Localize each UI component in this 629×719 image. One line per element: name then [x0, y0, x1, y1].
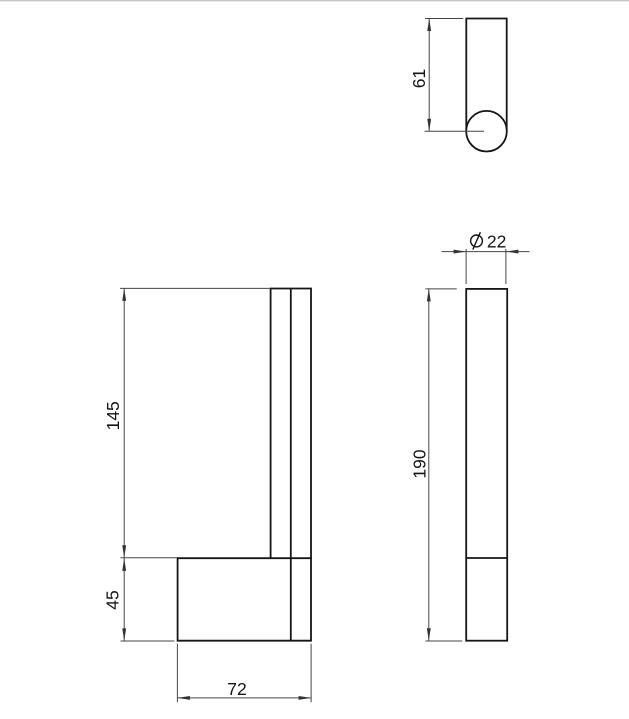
svg-text:72: 72: [227, 679, 246, 699]
svg-text:22: 22: [487, 232, 506, 252]
svg-text:190: 190: [410, 449, 430, 478]
svg-text:145: 145: [103, 401, 123, 430]
svg-text:61: 61: [409, 69, 429, 88]
svg-text:45: 45: [103, 590, 123, 609]
